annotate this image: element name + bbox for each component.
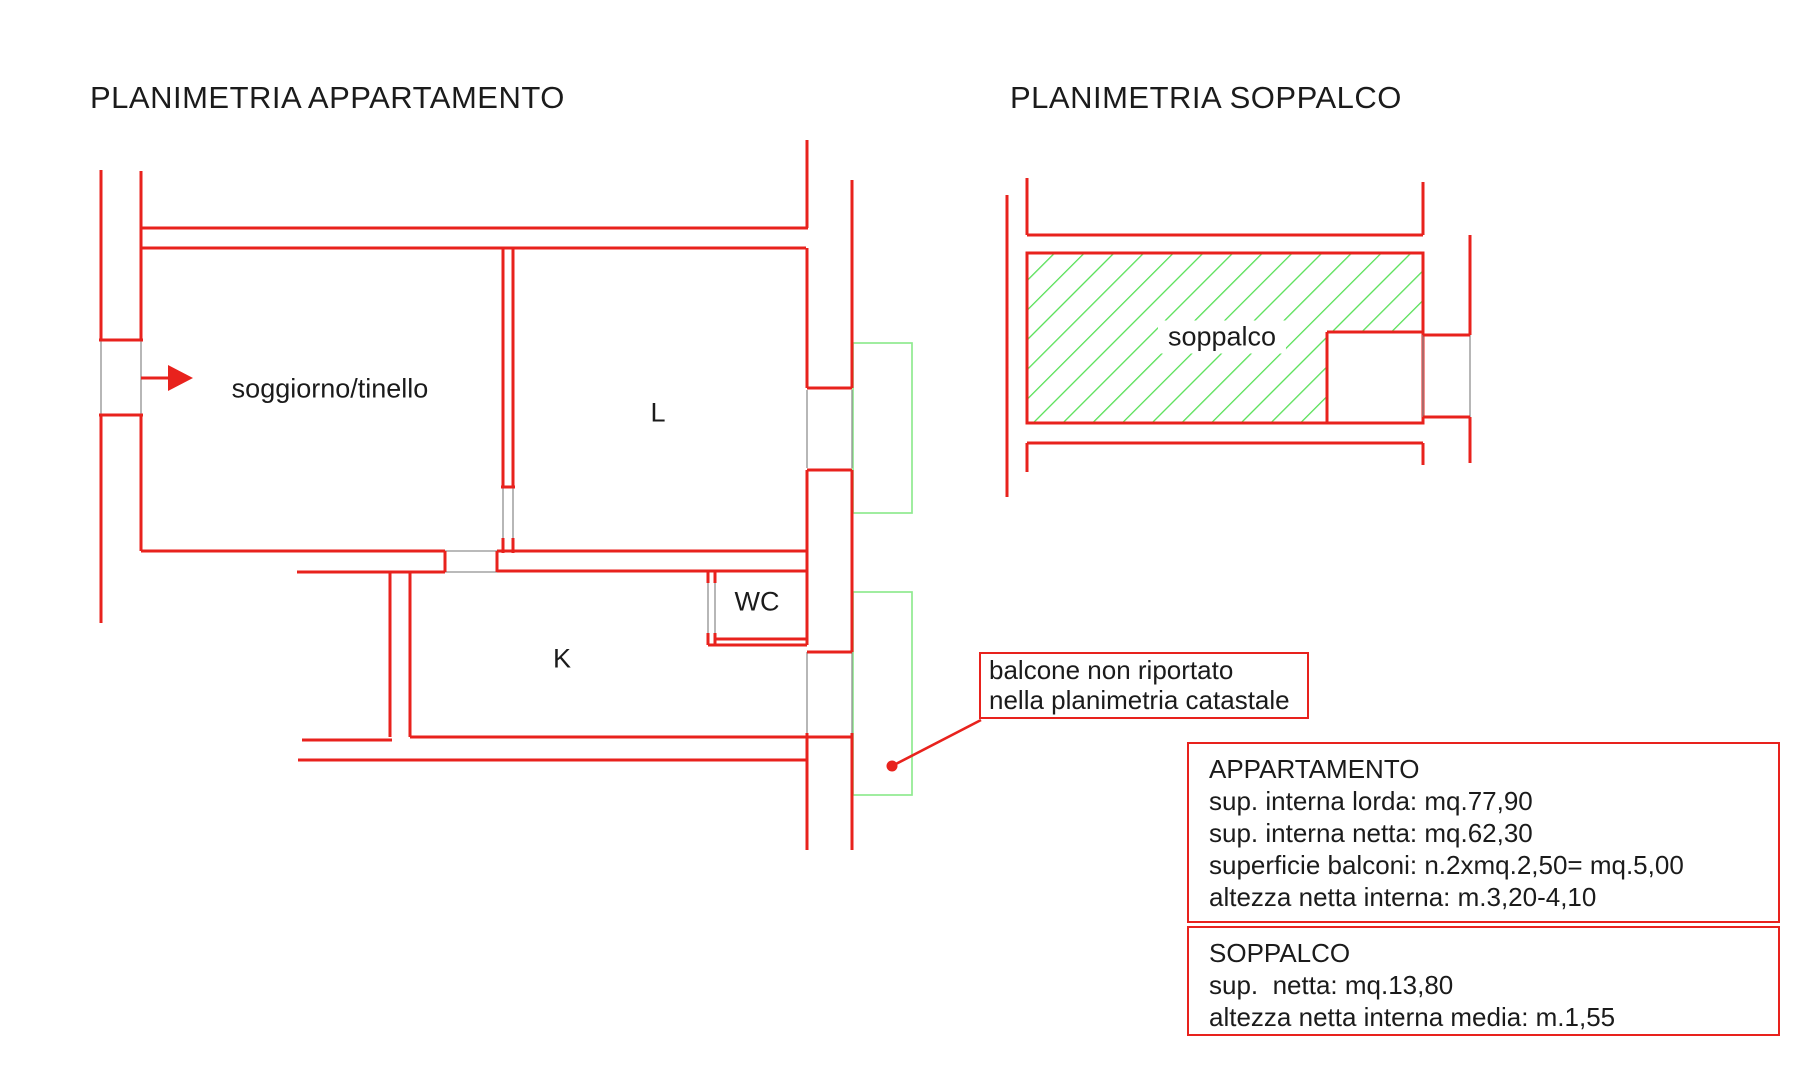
soppalco-info-box: SOPPALCO sup. netta: mq.13,80 altezza ne… [1187,926,1780,1036]
balcony-callout-box: balcone non riportato nella planimetria … [979,652,1309,719]
apartment-plan-title: PLANIMETRIA APPARTAMENTO [90,82,565,113]
callout-line-1: balcone non riportato [989,655,1307,685]
balcony-outline-lower [853,592,912,795]
room-label-wc: WC [735,589,780,616]
soppalco-info-row: altezza netta interna media: m.1,55 [1209,1001,1778,1033]
room-label-soggiorno: soggiorno/tinello [232,376,429,403]
soppalco-window-opening [1423,335,1470,417]
soppalco-plan-title: PLANIMETRIA SOPPALCO [1010,82,1402,113]
entrance-arrow-icon [141,365,193,391]
door-window-openings [101,340,852,733]
apartment-info-row: altezza netta interna: m.3,20-4,10 [1209,881,1778,913]
soppalco-info-title: SOPPALCO [1209,937,1778,969]
apartment-info-title: APPARTAMENTO [1209,753,1778,785]
floor-plan-sheet: PLANIMETRIA APPARTAMENTO PLANIMETRIA SOP… [0,0,1800,1080]
apartment-info-row: sup. interna netta: mq.62,30 [1209,817,1778,849]
soppalco-info-row: sup. netta: mq.13,80 [1209,969,1778,1001]
apartment-info-row: sup. interna lorda: mq.77,90 [1209,785,1778,817]
room-label-k: K [553,646,571,673]
room-label-soppalco: soppalco [1158,321,1286,354]
apartment-info-row: superficie balconi: n.2xmq.2,50= mq.5,00 [1209,849,1778,881]
apartment-plan [99,140,981,850]
apartment-walls [99,140,852,850]
room-label-l: L [650,400,665,427]
callout-line-2: nella planimetria catastale [989,685,1307,715]
balcony-callout-leader [887,720,982,772]
balcony-outline-upper [853,343,912,513]
apartment-info-box: APPARTAMENTO sup. interna lorda: mq.77,9… [1187,742,1780,923]
